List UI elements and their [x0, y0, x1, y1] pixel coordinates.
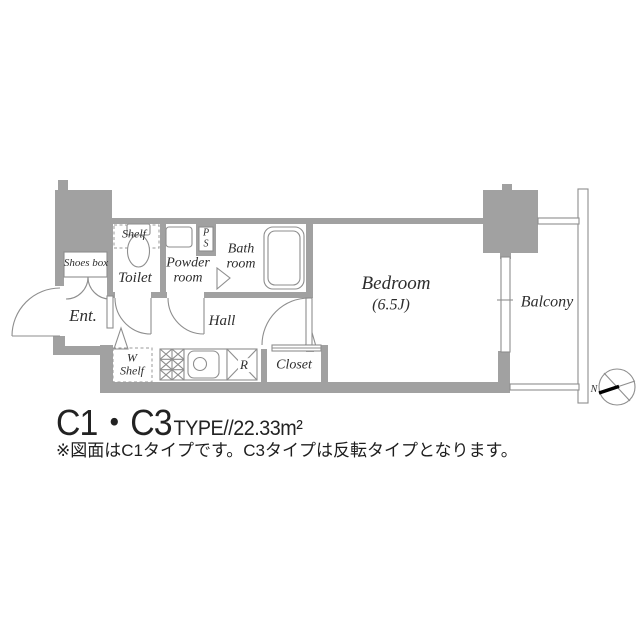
- hall-partition: [107, 296, 113, 328]
- powder-room-door-arc: [168, 298, 204, 334]
- hall-door-triangle: [114, 328, 128, 349]
- compass-north-label: N: [591, 385, 598, 396]
- refrigerator-label: R: [238, 358, 250, 372]
- bathtub-icon: [264, 227, 304, 289]
- bedroom-door-arc: [262, 298, 312, 345]
- compass-icon: [599, 369, 635, 405]
- room-label-bath-room: Bath room: [226, 242, 255, 271]
- room-label-shelf: Shelf: [122, 228, 146, 241]
- stove-icon: [160, 349, 184, 380]
- entrance-door-arc: [12, 288, 60, 336]
- room-label-hall: Hall: [209, 314, 236, 330]
- room-label-closet: Closet: [276, 359, 312, 374]
- closet-sliding-door: [272, 345, 321, 351]
- room-label-balcony: Balcony: [521, 295, 573, 312]
- kitchen-sink-icon: [184, 349, 227, 380]
- room-label-bedroom: Bedroom: [362, 274, 431, 294]
- room-label-toilet: Toilet: [118, 271, 152, 287]
- bedroom-area-label: (6.5J): [372, 298, 410, 315]
- plan-note: ※図面はC1タイプです。C3タイプは反転タイプとなります。: [56, 436, 518, 461]
- room-label-shoes-box: Shoes box: [64, 258, 108, 270]
- room-label-entrance: Ent.: [69, 307, 97, 325]
- bedroom-window: [497, 257, 513, 352]
- room-label-powder-room: Powder room: [166, 256, 210, 285]
- room-label-ps: P S: [203, 229, 209, 250]
- floor-plan-page: Shelf Shoes box Toilet Powder room P S B…: [0, 0, 639, 640]
- washbasin-icon: [166, 227, 192, 247]
- room-label-w-shelf: W Shelf: [120, 351, 144, 376]
